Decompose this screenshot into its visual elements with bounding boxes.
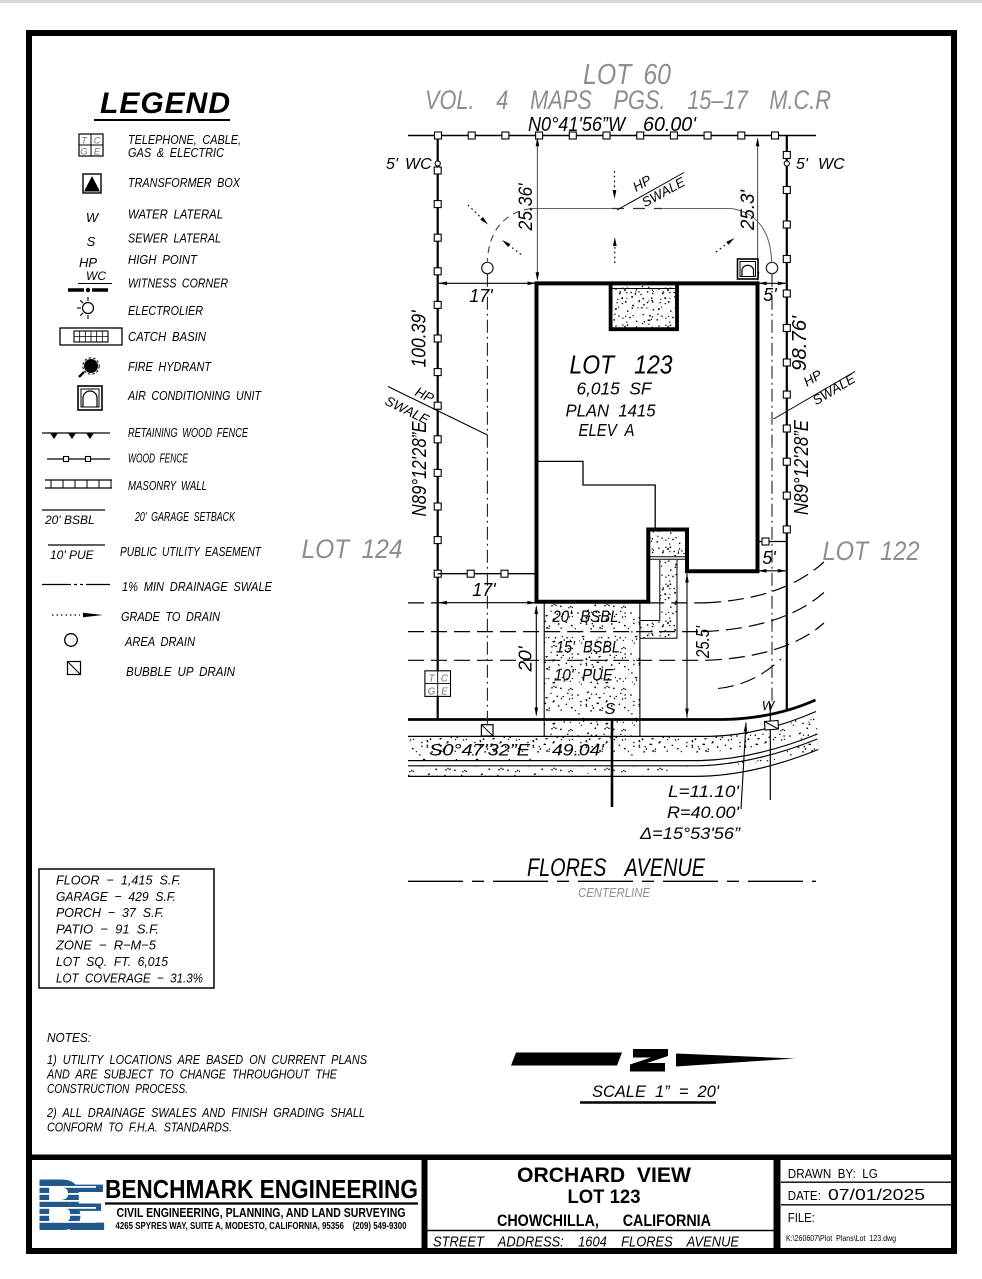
svg-text:E: E — [441, 687, 448, 698]
svg-text:17': 17' — [472, 580, 496, 600]
svg-text:LEGEND: LEGEND — [100, 87, 231, 120]
svg-text:5': 5' — [796, 156, 809, 173]
svg-text:6,015 SF: 6,015 SF — [577, 379, 653, 399]
svg-text:C: C — [94, 136, 101, 147]
svg-text:10' PUE: 10' PUE — [554, 666, 614, 685]
svg-text:LOT 122: LOT 122 — [823, 536, 920, 566]
svg-text:BENCHMARK ENGINEERING: BENCHMARK ENGINEERING — [105, 1174, 418, 1204]
svg-text:AREA DRAIN: AREA DRAIN — [124, 635, 196, 649]
svg-text:20' BSBL: 20' BSBL — [552, 607, 619, 626]
svg-text:STREET ADDRESS: 1604: STREET ADDRESS: 1604 FLORES AVENUE — [433, 1234, 740, 1251]
svg-text:Δ=15°53'56”: Δ=15°53'56” — [639, 824, 741, 843]
svg-text:LOT SQ. FT. 6,015: LOT SQ. FT. 6,015 — [56, 954, 169, 969]
svg-text:20' GARAGE SETBACK: 20' GARAGE SETBACK — [134, 510, 235, 524]
svg-text:49.04': 49.04' — [552, 741, 605, 760]
svg-text:PUBLIC UTILITY EASEMENT: PUBLIC UTILITY EASEMENT — [120, 545, 262, 559]
svg-text:PATIO − 91 S.F.: PATIO − 91 S.F. — [56, 921, 159, 936]
svg-text:15' BSBL: 15' BSBL — [556, 638, 620, 657]
svg-text:W: W — [762, 698, 776, 713]
svg-text:WC: WC — [818, 156, 845, 173]
svg-text:25.3': 25.3' — [738, 189, 759, 231]
svg-text:HIGH POINT: HIGH POINT — [128, 253, 198, 267]
svg-text:NOTES:: NOTES: — [47, 1030, 91, 1045]
svg-text:17': 17' — [469, 286, 493, 306]
svg-text:AND ARE SUBJECT TO CHANGE: AND ARE SUBJECT TO CHANGE THROUGHOUT THE — [46, 1067, 337, 1082]
svg-text:WATER LATERAL: WATER LATERAL — [128, 208, 223, 222]
svg-text:CIVIL ENGINEERING, PLANNING, A: CIVIL ENGINEERING, PLANNING, AND LAND SU… — [117, 1205, 406, 1220]
svg-text:FIRE HYDRANT: FIRE HYDRANT — [128, 360, 212, 374]
svg-text:25.36': 25.36' — [516, 182, 537, 231]
svg-text:20' BSBL: 20' BSBL — [44, 513, 95, 527]
svg-text:WOOD FENCE: WOOD FENCE — [128, 452, 188, 466]
svg-text:N89°12'28”E: N89°12'28”E — [791, 419, 813, 515]
svg-text:SEWER LATERAL: SEWER LATERAL — [128, 232, 221, 246]
svg-text:WC: WC — [86, 269, 106, 283]
svg-text:WC: WC — [405, 156, 432, 173]
svg-text:FLOOR − 1,415 S.F.: FLOOR − 1,415 S.F. — [56, 873, 181, 888]
svg-text:20': 20' — [516, 646, 536, 673]
svg-text:FILE:: FILE: — [788, 1210, 815, 1225]
svg-text:VOL. 4 MAPS PGS. 15–17 M.: VOL. 4 MAPS PGS. 15–17 M.C.R — [425, 85, 831, 115]
svg-text:PLAN 1415: PLAN 1415 — [566, 401, 656, 421]
svg-text:07/01/2025: 07/01/2025 — [828, 1187, 925, 1204]
svg-text:5': 5' — [386, 156, 399, 173]
svg-text:W: W — [86, 210, 100, 225]
svg-text:ELEV A: ELEV A — [579, 420, 635, 440]
svg-text:LOT 123: LOT 123 — [570, 352, 673, 380]
svg-text:R=40.00': R=40.00' — [667, 803, 740, 822]
svg-text:DATE:: DATE: — [788, 1188, 821, 1203]
svg-text:E: E — [94, 147, 101, 158]
svg-text:AIR CONDITIONING UNIT: AIR CONDITIONING UNIT — [127, 389, 262, 403]
svg-text:K:\260607\Plot Plans\Lot 123: K:\260607\Plot Plans\Lot 123.dwg — [786, 1233, 896, 1243]
svg-text:100.39': 100.39' — [409, 309, 431, 367]
svg-text:G: G — [80, 147, 87, 158]
svg-text:TRANSFORMER BOX: TRANSFORMER BOX — [128, 176, 241, 190]
svg-text:1) UTILITY LOCATIONS ARE B: 1) UTILITY LOCATIONS ARE BASED ON CURREN… — [47, 1052, 367, 1067]
svg-text:S: S — [605, 701, 616, 718]
svg-text:BUBBLE UP DRAIN: BUBBLE UP DRAIN — [126, 665, 236, 679]
svg-text:CATCH BASIN: CATCH BASIN — [128, 330, 207, 344]
svg-text:25.5': 25.5' — [693, 626, 713, 659]
svg-text:GRADE TO DRAIN: GRADE TO DRAIN — [121, 610, 221, 624]
svg-text:CHOWCHILLA, CALIFORNIA: CHOWCHILLA, CALIFORNIA — [497, 1211, 711, 1230]
svg-text:CONFORM TO F.H.A. STANDARDS: CONFORM TO F.H.A. STANDARDS. — [47, 1120, 232, 1135]
svg-text:2) ALL DRAINAGE SWALES AND: 2) ALL DRAINAGE SWALES AND FINISH GRADIN… — [46, 1105, 365, 1120]
svg-text:T: T — [428, 674, 435, 685]
svg-text:10' PUE: 10' PUE — [50, 548, 95, 562]
svg-text:1% MIN DRAINAGE SWALE: 1% MIN DRAINAGE SWALE — [122, 580, 273, 594]
svg-text:GAS & ELECTRIC: GAS & ELECTRIC — [128, 146, 225, 160]
svg-text:MASONRY WALL: MASONRY WALL — [128, 479, 207, 493]
svg-text:ELECTROLIER: ELECTROLIER — [128, 304, 203, 318]
svg-text:PORCH − 37 S.F.: PORCH − 37 S.F. — [56, 905, 164, 920]
svg-text:G: G — [428, 687, 436, 698]
svg-text:CONSTRUCTION PROCESS.: CONSTRUCTION PROCESS. — [47, 1081, 188, 1096]
svg-text:ORCHARD VIEW: ORCHARD VIEW — [517, 1164, 691, 1187]
svg-text:GARAGE − 429 S.F.: GARAGE − 429 S.F. — [56, 889, 176, 904]
svg-text:WITNESS CORNER: WITNESS CORNER — [128, 277, 228, 291]
svg-text:L=11.10': L=11.10' — [668, 782, 740, 801]
svg-text:5': 5' — [762, 548, 776, 568]
svg-text:LOT COVERAGE − 31.3%: LOT COVERAGE − 31.3% — [56, 970, 203, 985]
svg-text:FLORES AVENUE: FLORES AVENUE — [527, 854, 705, 882]
svg-text:TELEPHONE, CABLE,: TELEPHONE, CABLE, — [128, 133, 241, 147]
svg-text:S: S — [87, 234, 96, 249]
svg-text:ZONE − R−M−5: ZONE − R−M−5 — [55, 938, 157, 953]
svg-text:DRAWN BY: LG: DRAWN BY: LG — [788, 1166, 878, 1181]
svg-text:LOT 124: LOT 124 — [302, 534, 403, 564]
svg-text:S0°47'32”E: S0°47'32”E — [429, 741, 531, 760]
svg-text:CENTERLINE: CENTERLINE — [578, 885, 650, 900]
svg-text:LOT 123: LOT 123 — [568, 1187, 641, 1208]
svg-text:C: C — [441, 674, 449, 685]
svg-text:N89°12'28”E: N89°12'28”E — [409, 421, 431, 517]
svg-text:HP: HP — [79, 255, 97, 270]
svg-text:4265 SPYRES WAY, SUITE A, MODE: 4265 SPYRES WAY, SUITE A, MODESTO, CALIF… — [116, 1221, 407, 1232]
svg-text:98.76': 98.76' — [789, 315, 811, 371]
svg-text:SCALE 1” = 20': SCALE 1” = 20' — [592, 1082, 720, 1101]
svg-text:RETAINING WOOD FENCE: RETAINING WOOD FENCE — [128, 426, 248, 440]
svg-text:5': 5' — [763, 285, 777, 305]
